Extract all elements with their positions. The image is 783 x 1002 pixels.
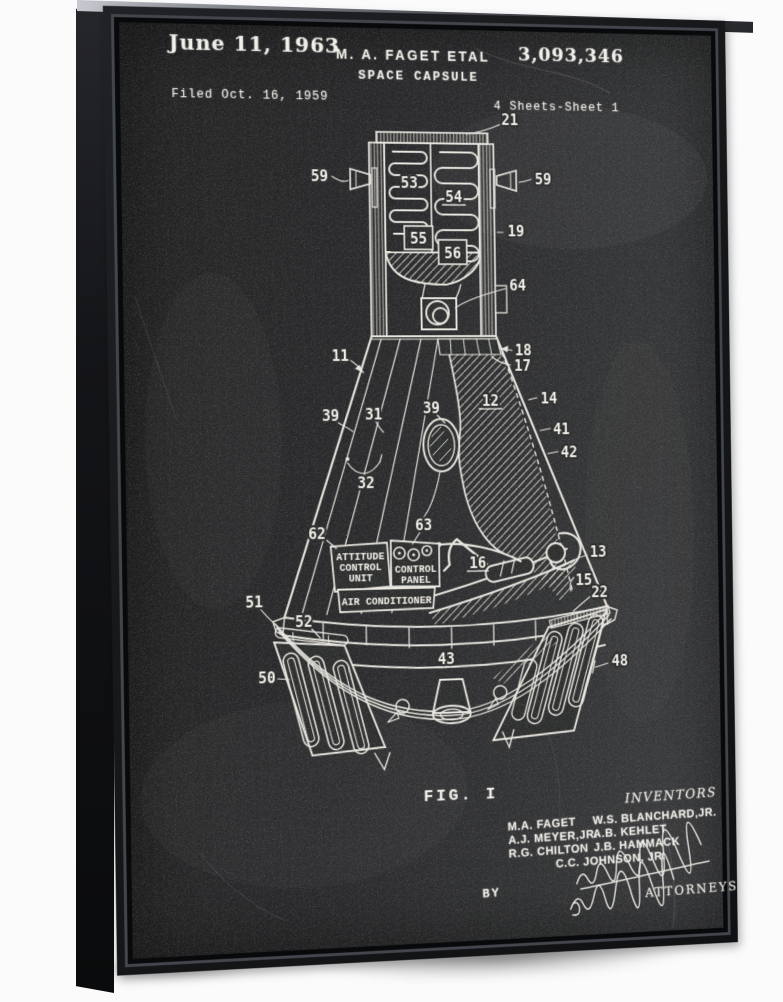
by-label: BY — [482, 885, 501, 901]
attorneys-label: ATTORNEYS — [645, 879, 739, 901]
float-frame: 21 59 59 53 54 55 56 19 64 11 18 17 14 1… — [103, 6, 738, 976]
inventors-heading: INVENTORS — [624, 785, 717, 807]
framed-patent-print-photo: 21 59 59 53 54 55 56 19 64 11 18 17 14 1… — [0, 0, 783, 999]
chalkboard-canvas: 21 59 59 53 54 55 56 19 64 11 18 17 14 1… — [119, 22, 723, 959]
inventors-block: INVENTORS M.A. FAGET A.J. MEYER,JR. R.G.… — [106, 27, 735, 966]
